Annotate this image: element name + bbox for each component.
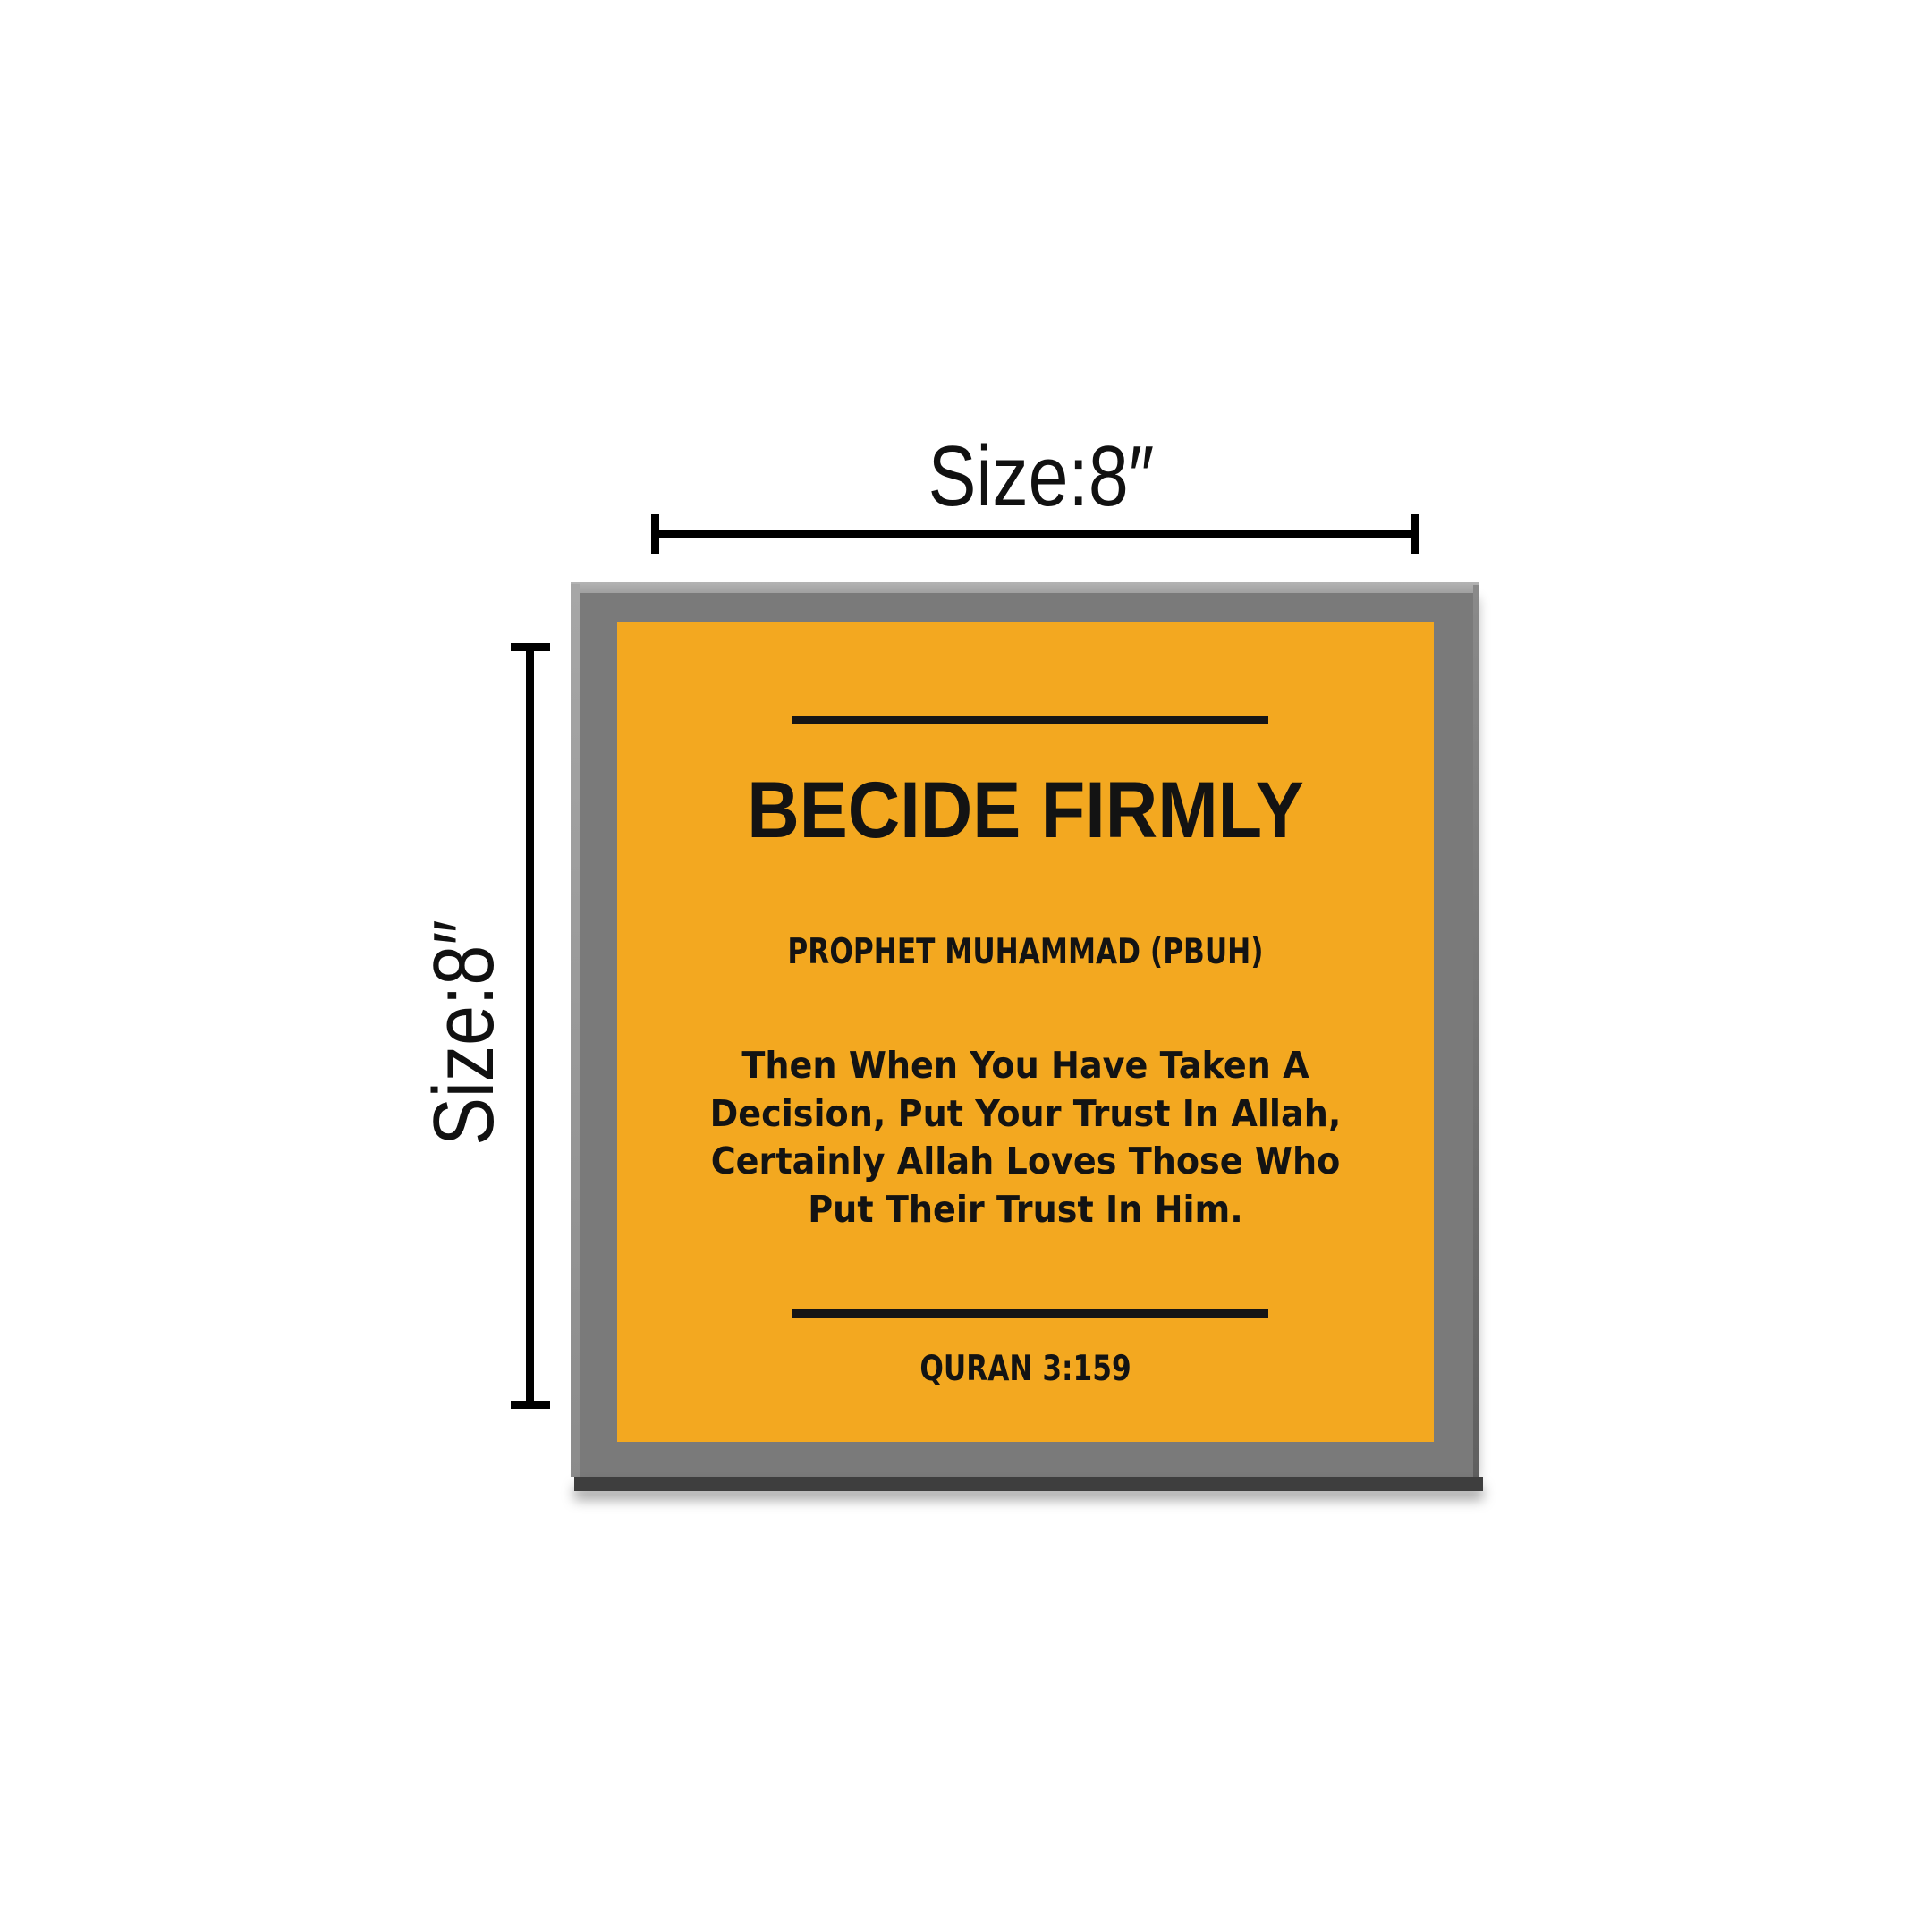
frame-left-bevel [571,584,580,1477]
framed-plaque: BECIDE FIRMLY PROPHET MUHAMMAD (PBUH) Th… [571,582,1479,1477]
quote-bottom-divider [792,1309,1268,1318]
product-image: Size:8″ Size:8″ BECIDE FIRMLY PROPHET MU… [0,0,1932,1932]
height-dimension-line [526,643,534,1409]
frame-top-highlight [571,582,1479,593]
quote-line: Put Their Trust In Him. [646,1186,1405,1234]
size-label-left-text: Size:8″ [415,920,513,1147]
frame-right-edge [1473,585,1479,1477]
size-label-left: Size:8″ [395,765,534,1301]
quote-line: Decision, Put Your Trust In Allah, [646,1090,1405,1139]
plaque-reference: QURAN 3:159 [699,1346,1352,1391]
size-label-top: Size:8″ [816,419,1267,535]
plaque-attribution: PROPHET MUHAMMAD (PBUH) [699,928,1352,975]
plaque-quote: Then When You Have Taken A Decision, Put… [646,1042,1405,1233]
quote-line: Then When You Have Taken A [646,1042,1405,1090]
plaque-artwork: BECIDE FIRMLY PROPHET MUHAMMAD (PBUH) Th… [617,622,1434,1442]
title-top-divider [792,716,1268,724]
plaque-title: BECIDE FIRMLY [654,765,1397,854]
width-dimension-line [651,530,1419,538]
frame-bottom-edge [574,1477,1483,1491]
quote-line: Certainly Allah Loves Those Who [646,1138,1405,1186]
